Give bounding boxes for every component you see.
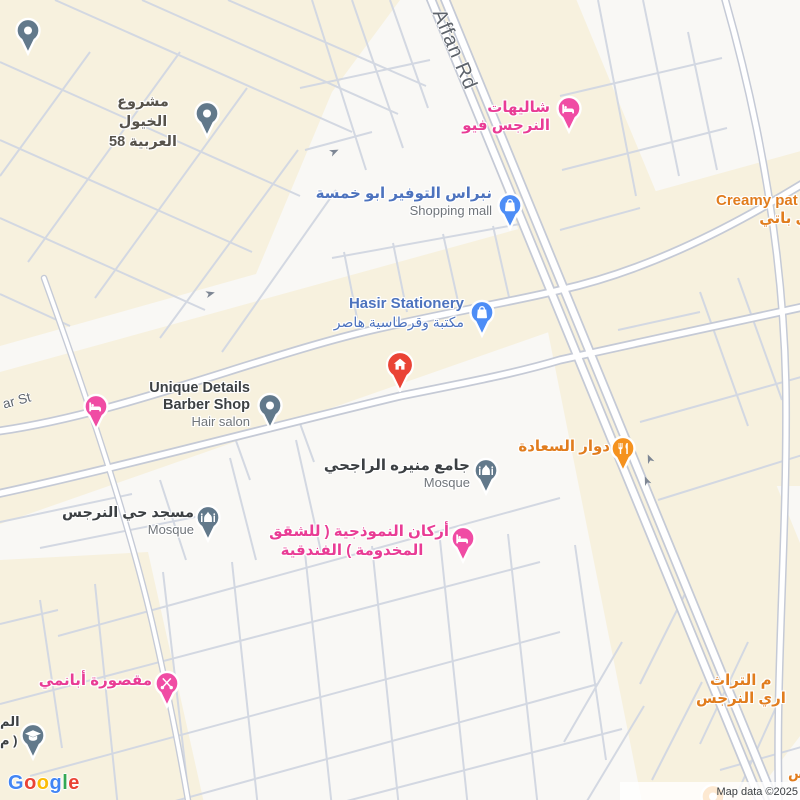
restaurant-pin-saada[interactable] bbox=[608, 434, 638, 474]
map-attribution: Map data ©2025 bbox=[717, 786, 799, 798]
poi-label-edge-partial-right: س bbox=[788, 764, 800, 782]
mosque-pin-narjis[interactable] bbox=[193, 503, 223, 543]
poi-label-horses-project[interactable]: مشروع الخيول العربية 58 bbox=[92, 92, 194, 152]
shopping-pin-hasir[interactable] bbox=[467, 298, 497, 338]
google-logo[interactable]: Google bbox=[8, 772, 80, 795]
poi-label-arkan-apartments[interactable]: أركان النموذجية ( للشقق المخدومة ) الفند… bbox=[255, 522, 449, 560]
poi-label-narjis-mosque[interactable]: مسجد حي النرجس Mosque bbox=[52, 504, 194, 537]
poi-label-maqsura-abanmi[interactable]: مقصورة أبانمي bbox=[32, 672, 152, 690]
poi-label-edge-partial-2: ( م bbox=[0, 732, 17, 750]
poi-label-creamy-pat[interactable]: Creamy pat مي باتي bbox=[716, 192, 800, 228]
poi-label-rajhi-mosque[interactable]: جامع منيره الراجحي Mosque bbox=[298, 457, 470, 490]
mosque-pin-rajhi[interactable] bbox=[471, 456, 501, 496]
poi-label-hasir-stationery[interactable]: Hasir Stationery مكتبة وقرطاسية هاصر bbox=[312, 295, 464, 331]
map-canvas[interactable]: Affan Rd ar St مشروع الخيول العربية 58 ش… bbox=[0, 0, 800, 800]
school-pin[interactable] bbox=[18, 721, 48, 761]
hotel-pin-left[interactable] bbox=[81, 392, 111, 432]
horses-project-pin[interactable] bbox=[192, 99, 222, 139]
hotel-pin-arkan[interactable] bbox=[448, 524, 478, 564]
barber-shop-pin[interactable] bbox=[255, 391, 285, 431]
poi-label-heritage-line1[interactable]: م التراث bbox=[710, 672, 772, 690]
poi-label-edge-partial-1: الم bbox=[0, 713, 20, 731]
shopping-pin-nebras[interactable] bbox=[495, 191, 525, 231]
hotel-pin-chalets[interactable] bbox=[554, 94, 584, 134]
generic-poi-pin[interactable] bbox=[13, 16, 43, 56]
poi-label-heritage-line2[interactable]: اري النرجس bbox=[696, 690, 786, 708]
poi-label-saada-roundabout[interactable]: دوار السعادة bbox=[488, 438, 610, 456]
poi-label-nebras-shopping-mall[interactable]: نبراس التوفير ابو خمسة Shopping mall bbox=[310, 185, 492, 218]
dot-icon bbox=[266, 401, 274, 409]
dot-icon bbox=[24, 26, 32, 34]
poi-label-barber-shop[interactable]: Unique Details Barber Shop Hair salon bbox=[118, 380, 250, 429]
beauty-pin-maqsura[interactable] bbox=[152, 669, 182, 709]
property-location-marker[interactable] bbox=[385, 350, 415, 392]
poi-label-narjis-chalets[interactable]: شاليهات النرجس فيو bbox=[428, 99, 550, 135]
dot-icon bbox=[203, 109, 211, 117]
